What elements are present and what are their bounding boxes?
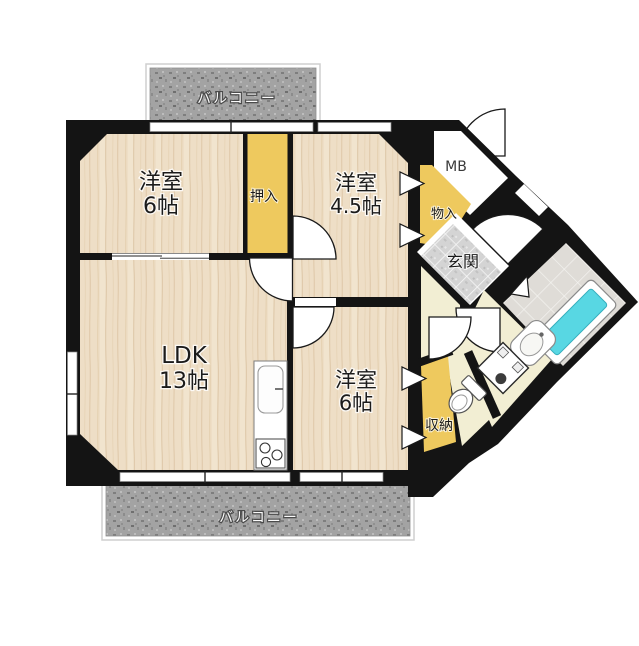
sliding-door-gap xyxy=(112,254,209,261)
monoire-label: 物入 xyxy=(431,207,457,222)
room-western-45-size: 4.5帖 xyxy=(330,194,382,218)
ldk-size: 13帖 xyxy=(159,369,209,394)
balcony-bottom-label: バルコニー xyxy=(219,510,299,526)
ldk-name: LDK xyxy=(161,343,208,369)
room-western-top-name: 洋室 xyxy=(139,170,183,195)
kitchen-unit xyxy=(254,361,287,470)
floorplan-image: バルコニー バルコニー xyxy=(0,0,639,646)
room-western-top-size: 6帖 xyxy=(143,194,179,219)
door-gap-6 xyxy=(295,298,336,306)
room-western-bottom-size: 6帖 xyxy=(339,391,373,415)
meter-box-label: MB xyxy=(445,159,467,175)
room-western-45-name: 洋室 xyxy=(335,171,377,195)
oshiire-label: 押入 xyxy=(250,189,278,205)
floorplan-svg: バルコニー バルコニー xyxy=(0,0,639,646)
stove xyxy=(256,439,285,468)
genkan-label: 玄関 xyxy=(447,252,479,271)
shunou-label: 収納 xyxy=(425,418,453,434)
balcony-top-label: バルコニー xyxy=(197,91,277,107)
room-western-bottom-name: 洋室 xyxy=(335,368,377,392)
balcony-bottom: バルコニー xyxy=(102,479,414,540)
balcony-top: バルコニー xyxy=(146,64,320,125)
